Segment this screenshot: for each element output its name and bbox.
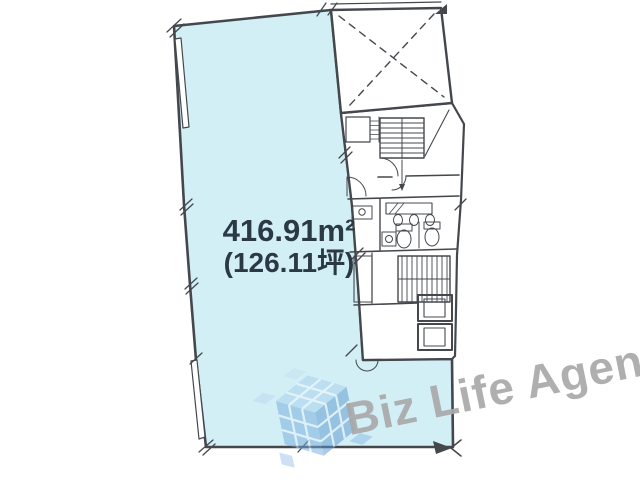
area-label-tsubo: (126.11坪) bbox=[224, 247, 355, 278]
area-label-m2: 416.91m² bbox=[223, 213, 356, 248]
floorplan-page: 416.91m² (126.11坪) Biz Life Agent bbox=[0, 0, 640, 480]
floorplan-drawing: 416.91m² (126.11坪) Biz Life Agent bbox=[0, 0, 640, 480]
shaft-x-icon bbox=[331, 2, 452, 113]
